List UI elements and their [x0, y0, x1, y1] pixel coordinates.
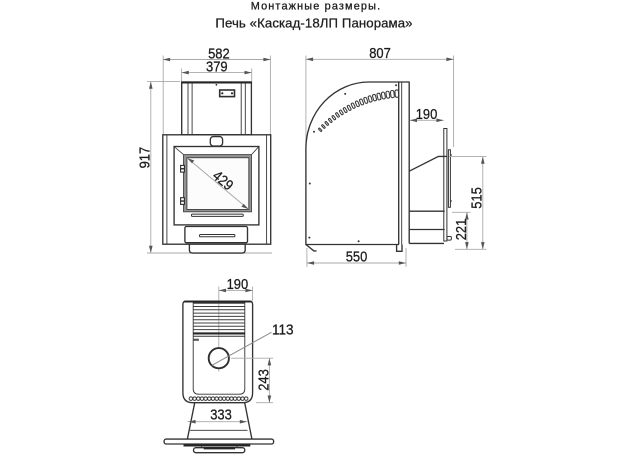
svg-text:113: 113 [272, 321, 294, 338]
svg-text:917: 917 [137, 147, 154, 169]
svg-text:190: 190 [416, 106, 438, 123]
svg-text:379: 379 [206, 58, 228, 75]
svg-text:333: 333 [210, 407, 232, 424]
svg-text:Печь «Каскад-18ЛП Панорама»: Печь «Каскад-18ЛП Панорама» [215, 15, 412, 30]
svg-text:243: 243 [255, 369, 272, 391]
svg-text:190: 190 [227, 276, 249, 293]
svg-text:Монтажные размеры.: Монтажные размеры. [251, 0, 382, 12]
svg-text:550: 550 [346, 249, 368, 266]
svg-text:515: 515 [469, 187, 486, 209]
svg-text:221: 221 [453, 219, 470, 241]
svg-text:807: 807 [369, 45, 391, 62]
